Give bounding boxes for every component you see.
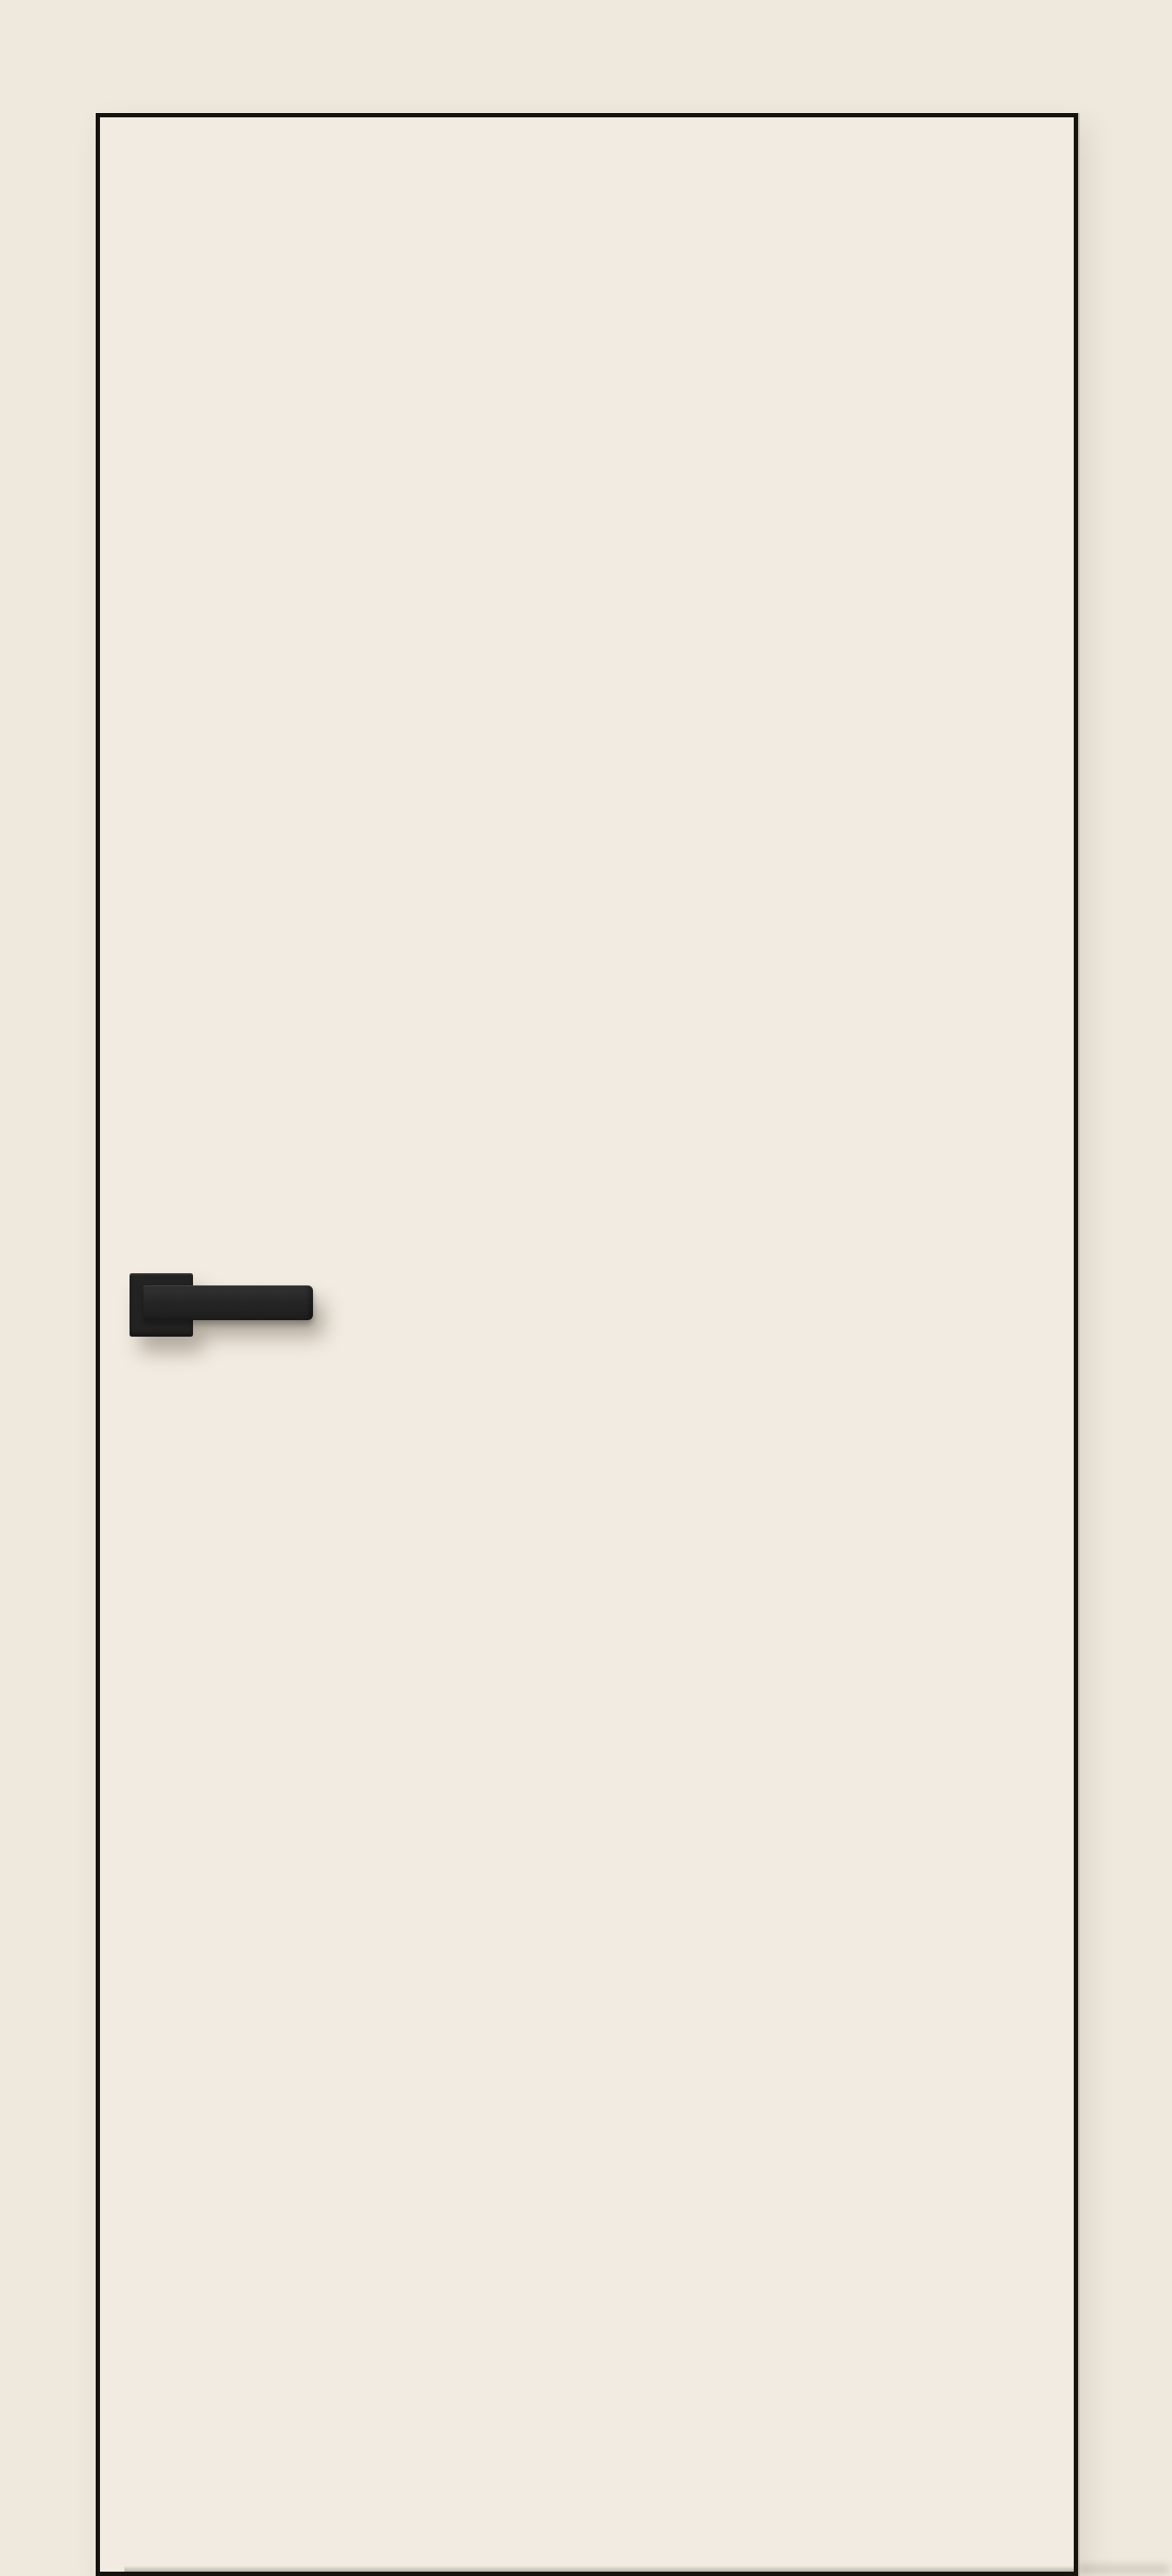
product-photo-scene <box>0 0 1172 2576</box>
handle-lever <box>143 1285 313 1320</box>
door-bottom-shade <box>124 2566 1074 2572</box>
floor-shadow <box>1078 2565 1169 2573</box>
door-panel <box>96 113 1078 2576</box>
door-handle <box>130 1273 331 1348</box>
